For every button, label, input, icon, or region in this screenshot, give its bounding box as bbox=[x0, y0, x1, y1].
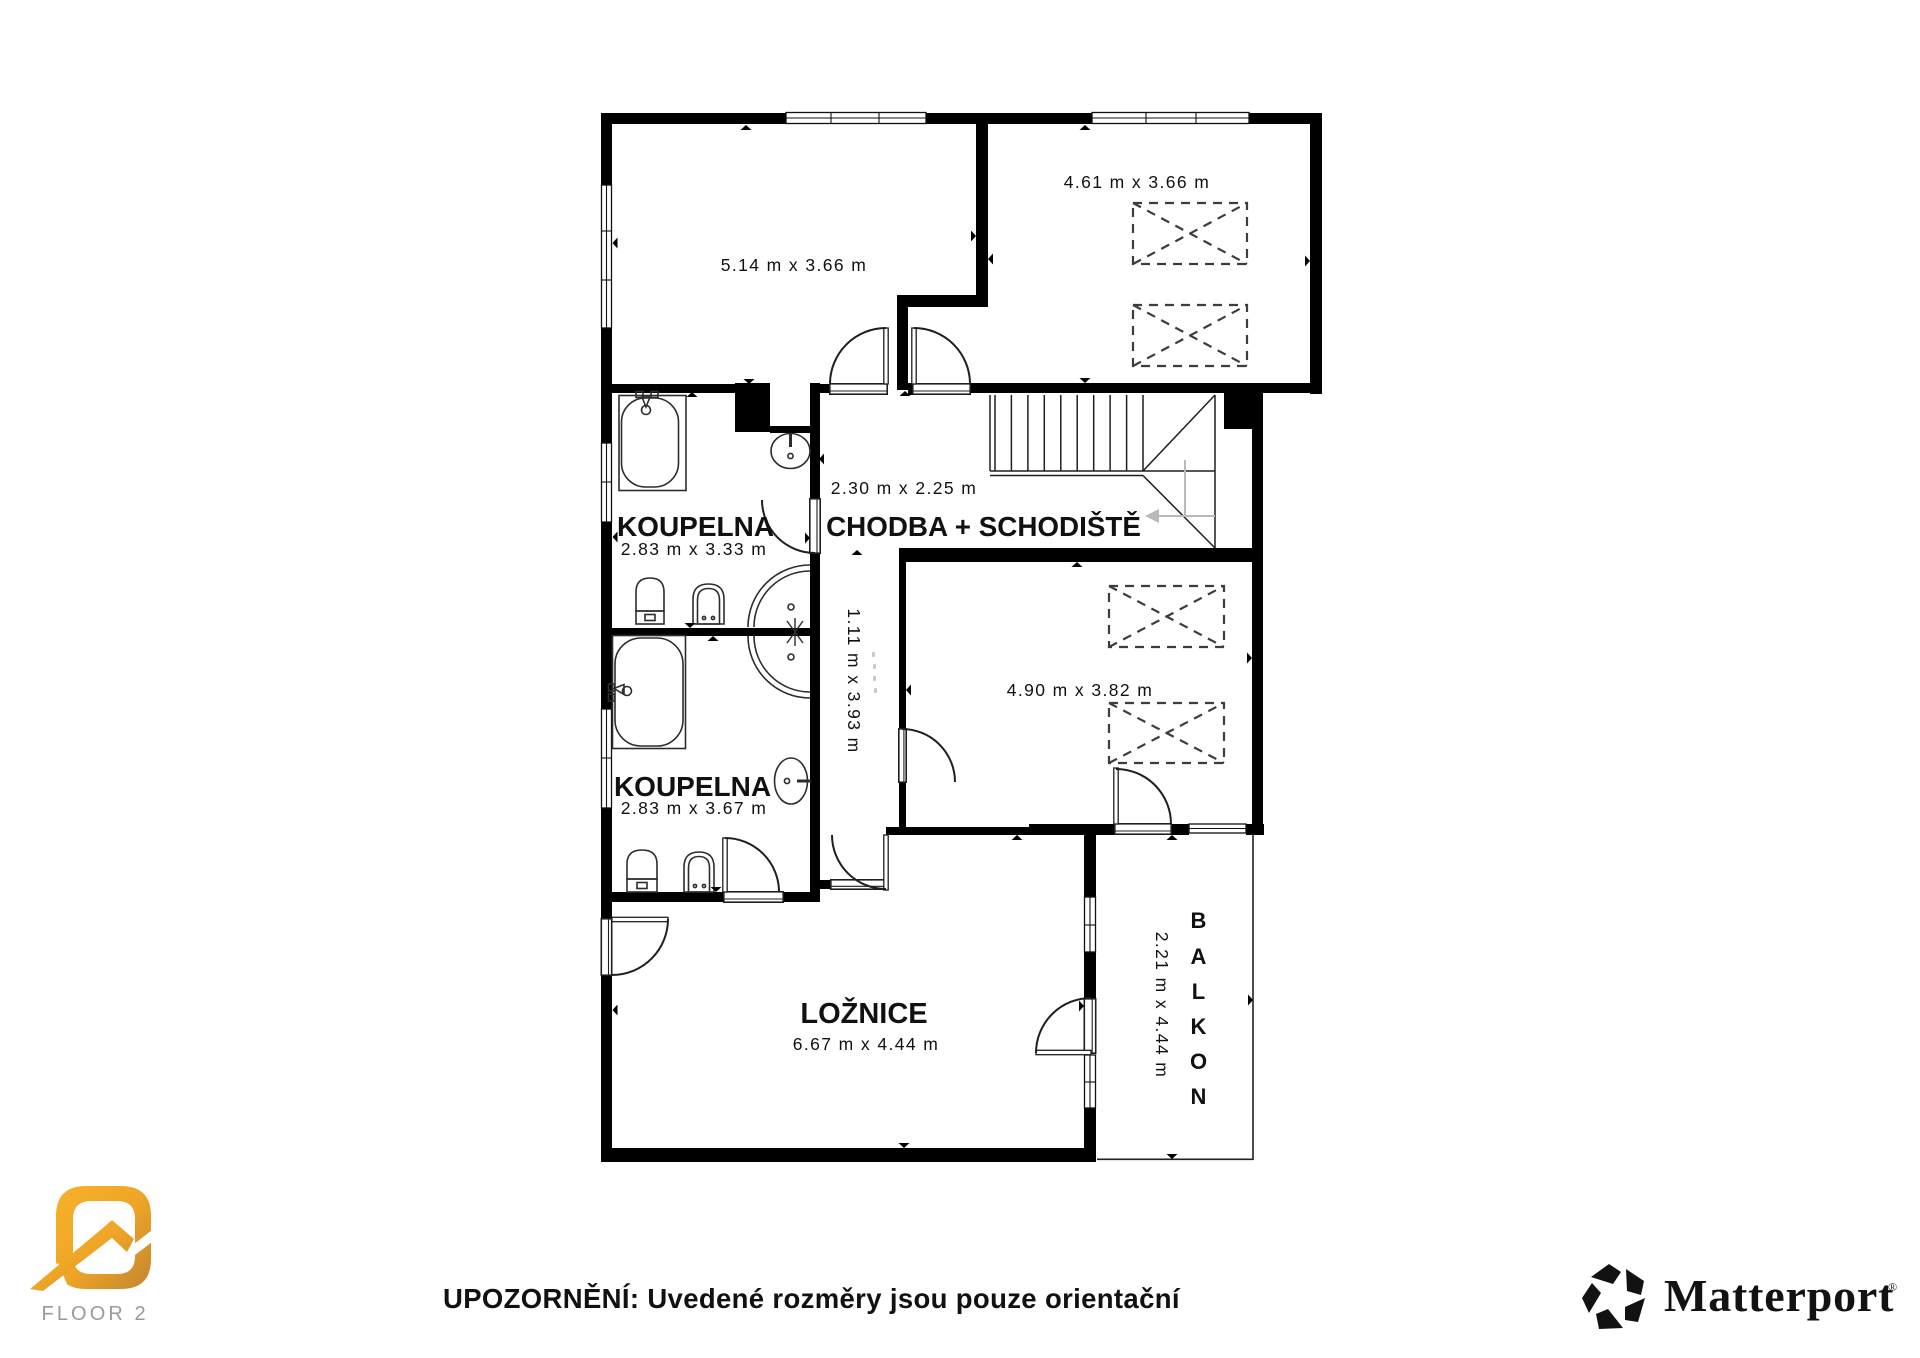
svg-text:N: N bbox=[1191, 1084, 1207, 1109]
svg-text:5.14 m x 3.66 m: 5.14 m x 3.66 m bbox=[721, 255, 867, 275]
svg-text:B: B bbox=[1191, 908, 1207, 933]
svg-text:UPOZORNĚNÍ: Uvedené rozměry js: UPOZORNĚNÍ: Uvedené rozměry jsou pouze o… bbox=[443, 1283, 1181, 1314]
svg-text:FLOOR 2: FLOOR 2 bbox=[42, 1303, 149, 1325]
svg-text:1.11 m x 3.93 m: 1.11 m x 3.93 m bbox=[844, 608, 864, 753]
svg-text:K: K bbox=[1191, 1014, 1207, 1039]
svg-text:4.61 m x 3.66 m: 4.61 m x 3.66 m bbox=[1064, 172, 1210, 192]
svg-text:®: ® bbox=[1888, 1280, 1897, 1294]
svg-text:2.30 m x 2.25 m: 2.30 m x 2.25 m bbox=[831, 478, 977, 498]
svg-text:L: L bbox=[1192, 979, 1205, 1004]
svg-text:6.67 m x 4.44 m: 6.67 m x 4.44 m bbox=[793, 1034, 939, 1054]
svg-text:2.83 m x 3.67 m: 2.83 m x 3.67 m bbox=[621, 798, 767, 818]
svg-text:KOUPELNA: KOUPELNA bbox=[617, 511, 774, 542]
svg-text:4.90 m x 3.82 m: 4.90 m x 3.82 m bbox=[1007, 680, 1153, 700]
svg-text:2.83 m x 3.33 m: 2.83 m x 3.33 m bbox=[621, 539, 767, 559]
svg-text:A: A bbox=[1191, 944, 1207, 969]
svg-text:Matterport: Matterport bbox=[1664, 1270, 1894, 1321]
svg-text:2.21 m x 4.44 m: 2.21 m x 4.44 m bbox=[1152, 932, 1172, 1078]
svg-text:LOŽNICE: LOŽNICE bbox=[800, 996, 927, 1030]
svg-text:O: O bbox=[1190, 1049, 1207, 1074]
svg-text:CHODBA + SCHODIŠTĚ: CHODBA + SCHODIŠTĚ bbox=[826, 510, 1141, 542]
